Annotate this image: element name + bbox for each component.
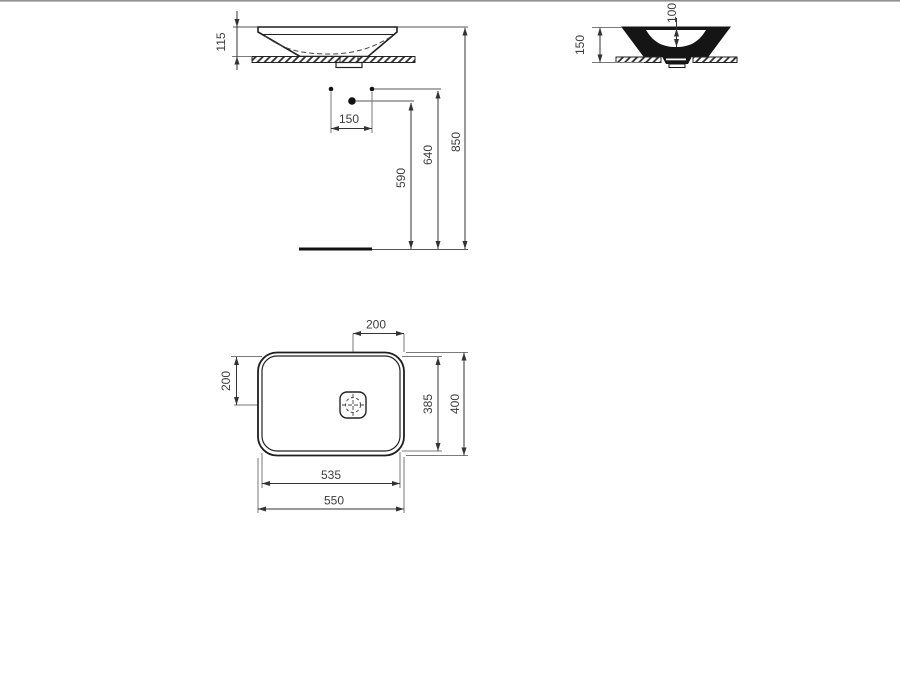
arrowhead-right [396, 331, 404, 336]
dimension-640: 640 [421, 91, 441, 250]
arrowhead-up [409, 103, 414, 111]
dimension-label: 150 [573, 35, 587, 55]
dimension-label: 850 [449, 132, 463, 152]
dimension-385: 385 [402, 357, 442, 452]
dimension-label: 400 [448, 394, 462, 414]
arrowhead-up [436, 357, 441, 365]
dimension-200-from-right: 200 [353, 318, 404, 353]
countertop-section-right [693, 57, 737, 63]
dimension-400: 400 [406, 353, 468, 456]
dimension-label: 150 [339, 112, 359, 126]
arrowhead-down [436, 443, 441, 451]
dimension-label: 200 [366, 318, 386, 332]
arrowhead-up [436, 91, 441, 99]
drain-cutout-front [340, 57, 358, 63]
basin-front-outline [258, 27, 397, 57]
tap-hole-right-dot [370, 87, 375, 92]
arrowhead-down [436, 241, 441, 249]
dimension-label: 535 [321, 468, 341, 482]
dimension-label: 640 [421, 145, 435, 165]
drain-nut-side [669, 64, 685, 68]
arrowhead-right [364, 126, 372, 131]
dimension-label: 590 [394, 168, 408, 188]
tap-hole-left-dot [329, 87, 334, 92]
plan-view: 200 200 385 400 [219, 318, 468, 514]
arrowhead-right [396, 507, 404, 512]
front-view: 115 150 590 640 [214, 11, 468, 250]
dimension-115: 115 [214, 11, 252, 70]
arrowhead-down [462, 448, 467, 456]
arrowhead-left [258, 507, 266, 512]
washbasin-technical-drawing: 115 150 590 640 [0, 0, 900, 676]
drain-slit [666, 59, 686, 61]
countertop-section-left [616, 57, 661, 63]
arrowhead-left [331, 126, 339, 131]
arrowhead-up [234, 357, 239, 365]
arrowhead-down [463, 241, 468, 249]
arrowhead-up [235, 57, 240, 65]
drawing-svg: 115 150 590 640 [0, 0, 900, 676]
dimension-label: 200 [219, 371, 233, 391]
dimension-550: 550 [258, 457, 404, 513]
dimension-850: 850 [449, 28, 468, 250]
dimension-label: 115 [214, 32, 228, 51]
dimension-535: 535 [262, 452, 400, 488]
drain-fitting-front [336, 63, 362, 68]
arrowhead-down [235, 19, 240, 27]
image-top-border [0, 0, 900, 2]
dimension-label: 550 [324, 494, 344, 508]
arrowhead-right [392, 481, 400, 486]
dimension-label: 385 [421, 394, 435, 414]
side-view: 150 100 [573, 3, 737, 68]
arrowhead-up [598, 28, 603, 36]
arrowhead-left [353, 331, 361, 336]
arrowhead-up [462, 353, 467, 361]
arrowhead-down [409, 241, 414, 249]
dimension-label: 100 [665, 3, 679, 23]
countertop-section-front [252, 57, 415, 63]
basin-plan-inner [262, 356, 400, 451]
arrowhead-down [234, 397, 239, 405]
dimension-200-from-top: 200 [219, 357, 262, 406]
arrowhead-down [598, 55, 603, 63]
drain-point-dot [348, 97, 356, 105]
arrowhead-up [463, 28, 468, 36]
arrowhead-left [262, 481, 270, 486]
dimension-590: 590 [394, 103, 414, 250]
